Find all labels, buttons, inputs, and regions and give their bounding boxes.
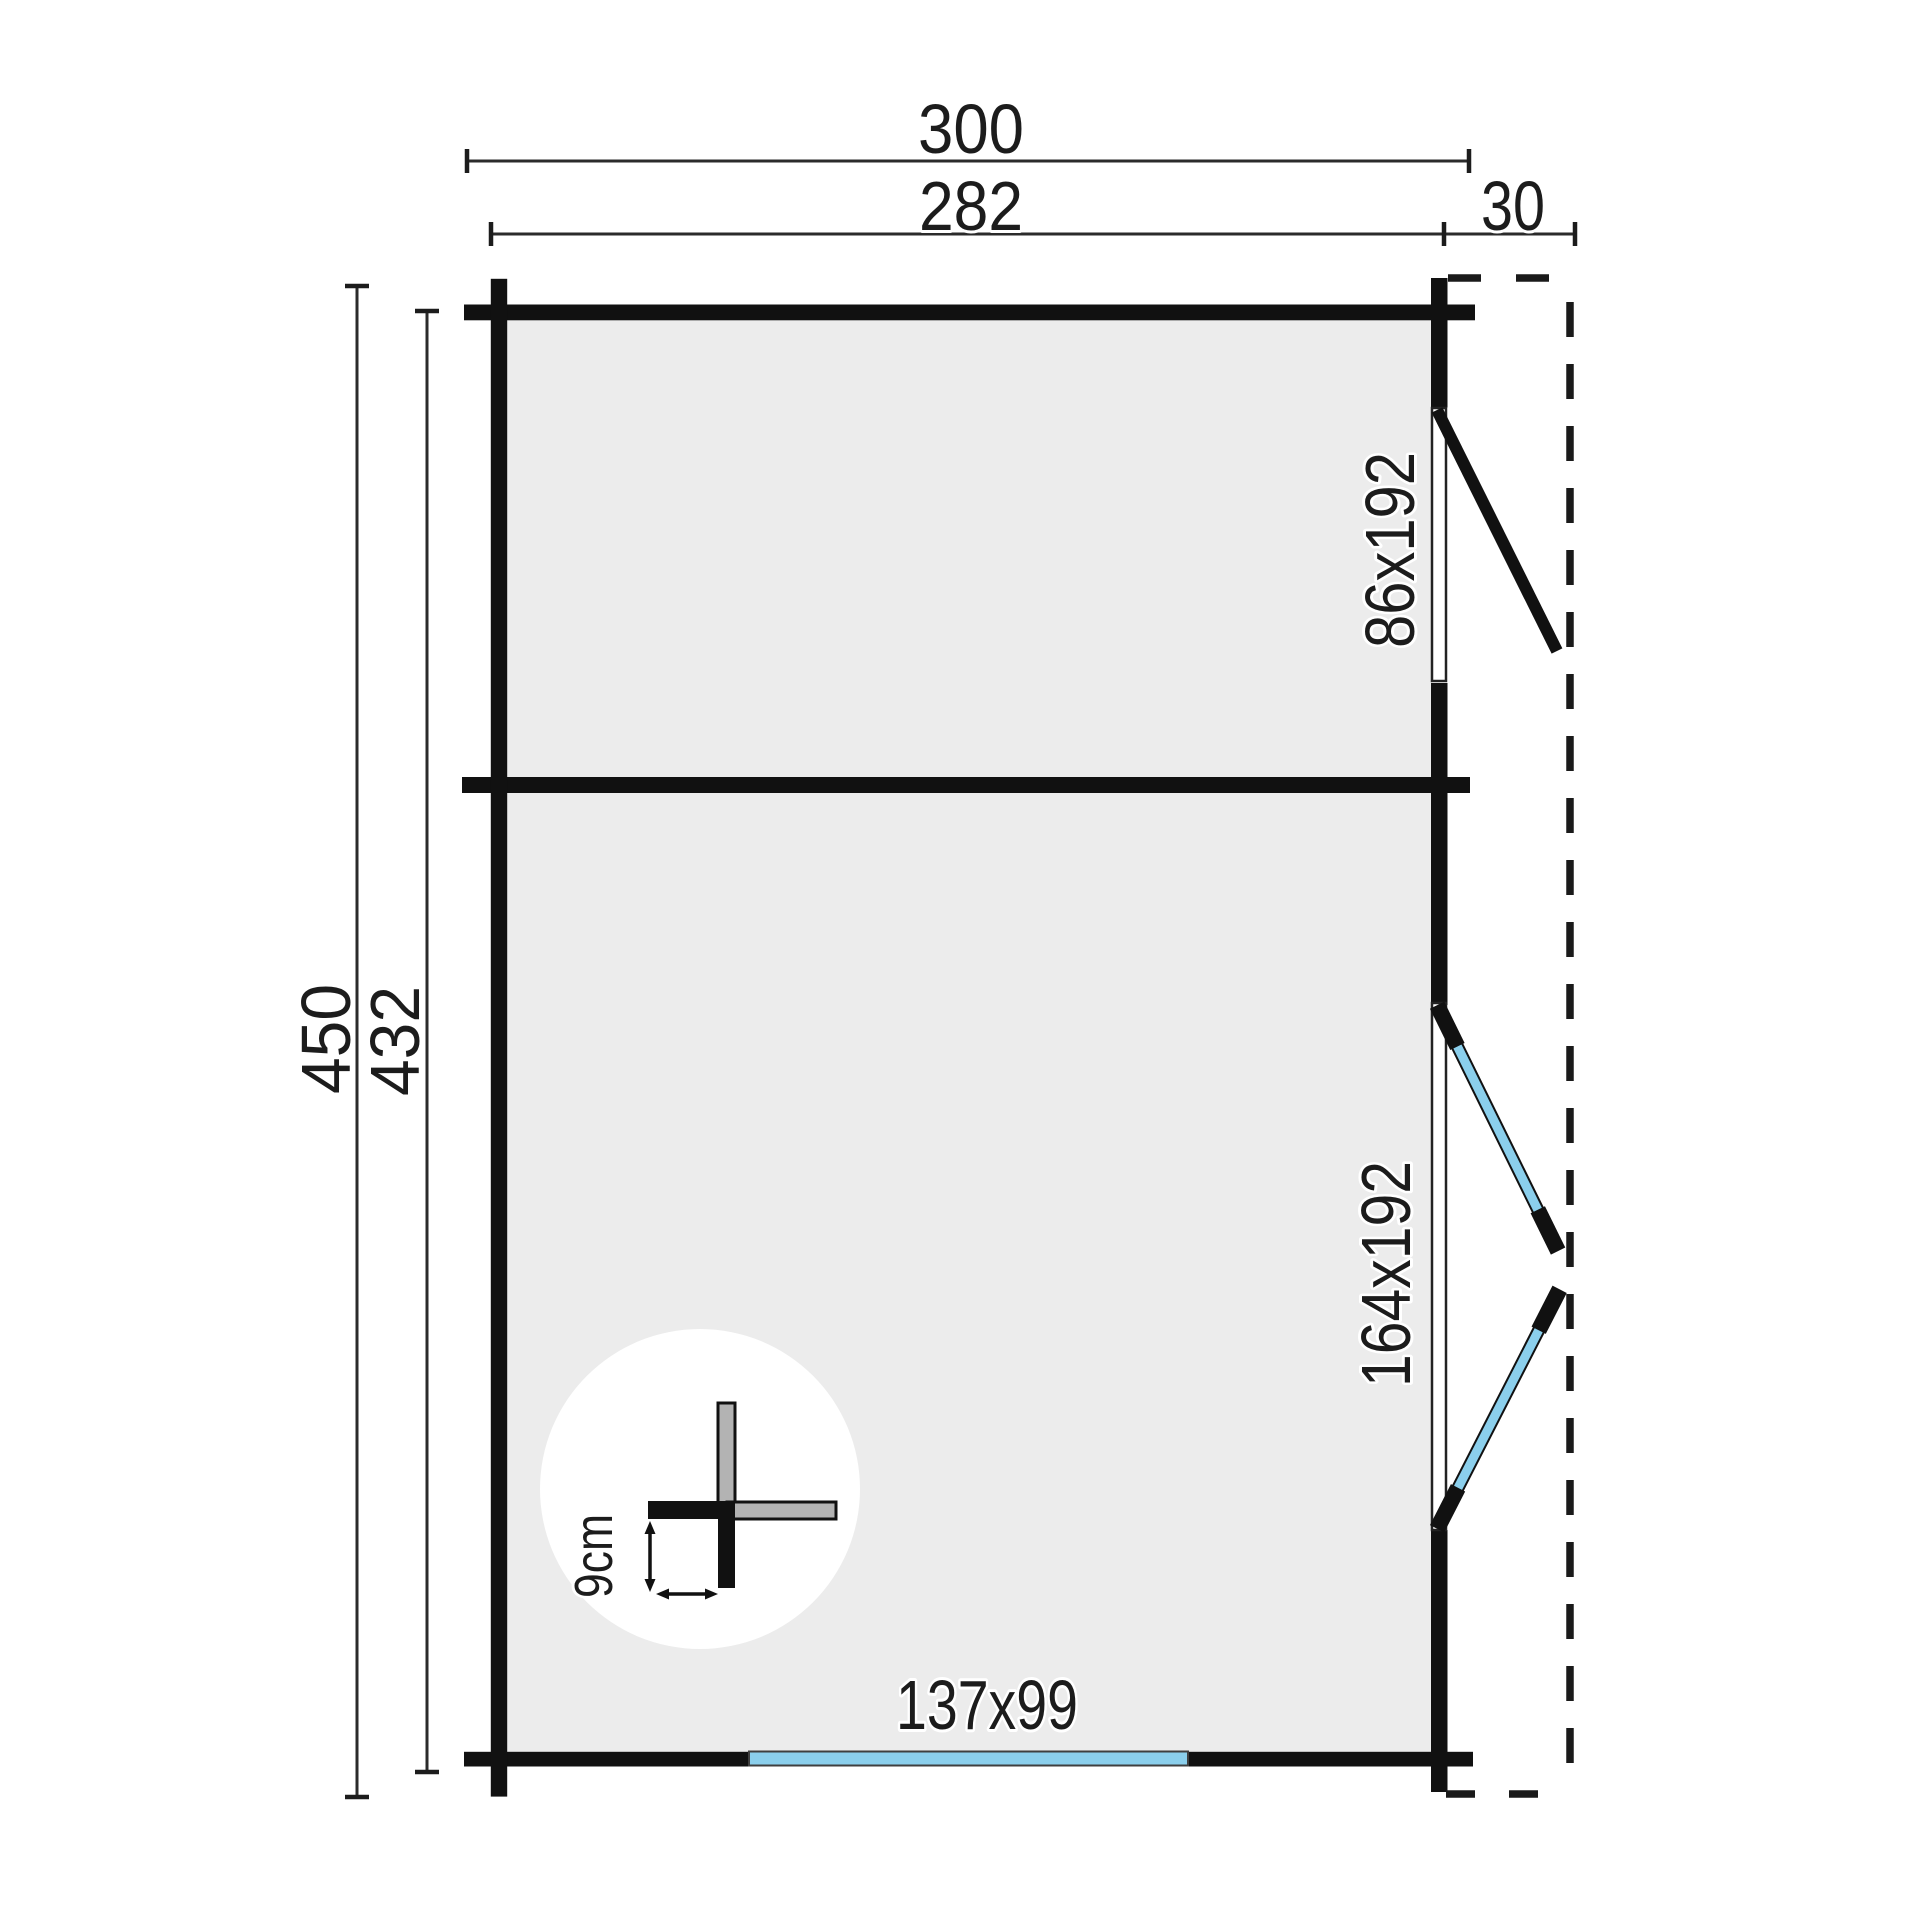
svg-text:300: 300 xyxy=(918,90,1024,168)
svg-text:137x99: 137x99 xyxy=(896,1666,1078,1744)
svg-text:282: 282 xyxy=(919,167,1023,245)
svg-text:30: 30 xyxy=(1481,167,1545,245)
svg-text:164x192: 164x192 xyxy=(1347,1161,1425,1387)
svg-text:432: 432 xyxy=(356,986,434,1096)
svg-text:450: 450 xyxy=(287,984,365,1094)
svg-text:9cm: 9cm xyxy=(564,1514,624,1598)
svg-text:86x192: 86x192 xyxy=(1351,452,1429,648)
